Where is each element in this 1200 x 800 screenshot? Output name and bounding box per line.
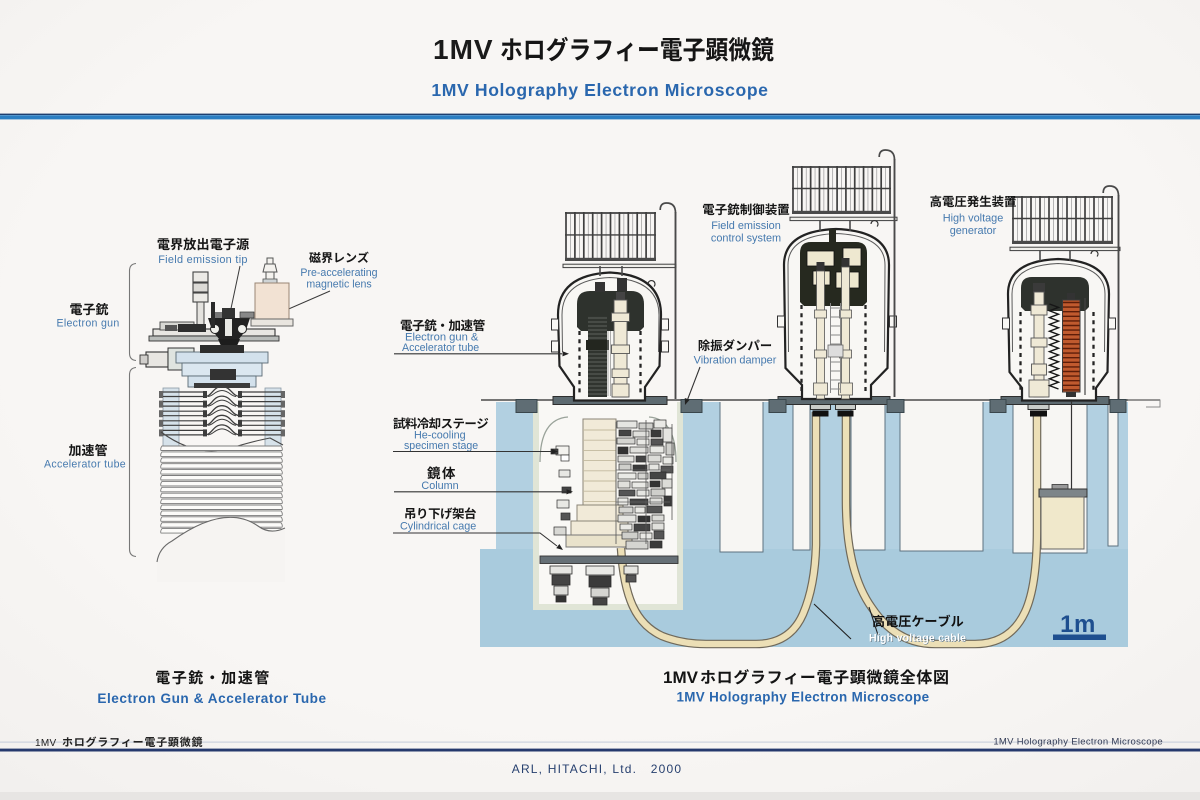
svg-text:specimen stage: specimen stage xyxy=(404,440,478,452)
svg-text:Column: Column xyxy=(421,480,458,492)
svg-text:1MV Holography Electron Micros: 1MV Holography Electron Microscope xyxy=(431,80,768,100)
svg-text:control system: control system xyxy=(711,233,781,245)
svg-text:High voltage: High voltage xyxy=(943,213,1004,225)
svg-text:Accelerator tube: Accelerator tube xyxy=(402,342,479,354)
svg-text:Field emission tip: Field emission tip xyxy=(158,254,248,266)
svg-text:1MV: 1MV xyxy=(663,668,699,687)
svg-text:Cylindrical cage: Cylindrical cage xyxy=(400,521,476,533)
svg-text:1MV: 1MV xyxy=(35,738,56,749)
svg-text:Electron gun: Electron gun xyxy=(56,318,119,330)
svg-text:ARL, HITACHI, Ltd. 2000: ARL, HITACHI, Ltd. 2000 xyxy=(512,762,683,776)
svg-text:Accelerator tube: Accelerator tube xyxy=(44,459,126,471)
svg-text:Field emission: Field emission xyxy=(711,220,781,232)
svg-text:Vibration damper: Vibration damper xyxy=(694,355,777,367)
svg-text:1m: 1m xyxy=(1060,611,1096,638)
svg-text:High voltage cable: High voltage cable xyxy=(869,633,966,645)
svg-text:magnetic lens: magnetic lens xyxy=(306,279,371,291)
svg-text:Electron Gun & Accelerator Tub: Electron Gun & Accelerator Tube xyxy=(97,691,326,706)
svg-text:1MV Holography Electron Micros: 1MV Holography Electron Microscope xyxy=(993,737,1163,748)
svg-text:1MV Holography Electron Micros: 1MV Holography Electron Microscope xyxy=(677,690,930,705)
svg-text:1MV: 1MV xyxy=(433,34,494,65)
svg-text:Pre-accelerating: Pre-accelerating xyxy=(300,267,377,279)
svg-text:generator: generator xyxy=(950,225,997,237)
